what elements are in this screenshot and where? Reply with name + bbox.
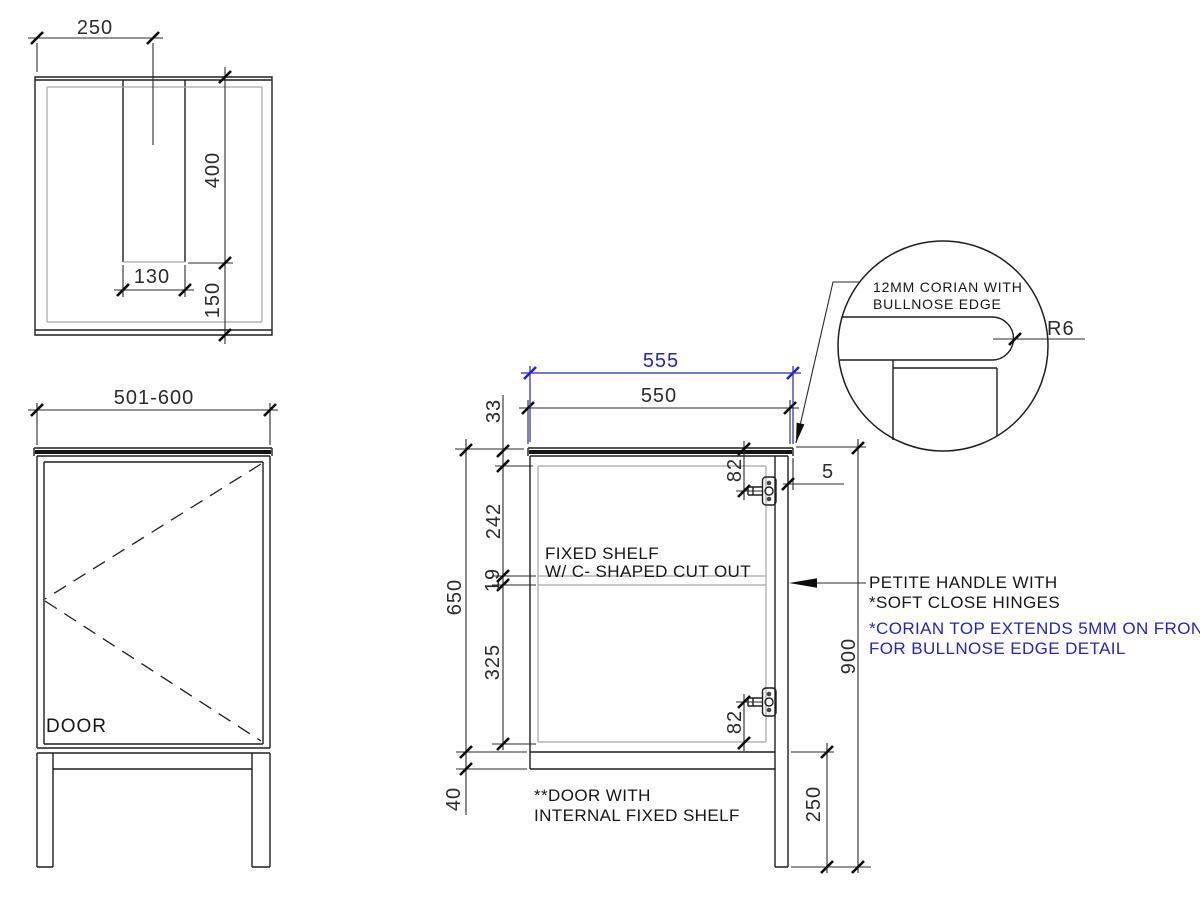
door-label: DOOR xyxy=(46,716,107,737)
drawing-sheet: 250 400 130 150 501-600 DOOR xyxy=(0,0,1200,900)
dim-242: 242 xyxy=(483,503,505,539)
detail-note-line1: 12MM CORIAN WITH xyxy=(873,279,1023,295)
front-view-outline xyxy=(34,448,272,867)
detail-section-lines xyxy=(840,317,1014,440)
side-view-inner-lines xyxy=(538,466,766,742)
door-swing-lines xyxy=(45,464,261,741)
detail-callout-leader xyxy=(796,282,860,443)
note-corian-line2: FOR BULLNOSE EDGE DETAIL xyxy=(869,639,1126,658)
note-door-line2: INTERNAL FIXED SHELF xyxy=(534,806,740,825)
dim-5: 5 xyxy=(822,461,834,483)
note-corian-line1: *CORIAN TOP EXTENDS 5MM ON FRONT xyxy=(869,619,1200,638)
detail-circle xyxy=(838,241,1048,451)
detail-callout-arrowhead xyxy=(796,423,804,443)
dim-250: 250 xyxy=(77,17,113,39)
note-fixed-shelf-line1: FIXED SHELF xyxy=(545,544,659,563)
hinge-screw xyxy=(767,708,772,713)
dim-650: 650 xyxy=(444,579,466,615)
dim-r6: R6 xyxy=(1047,318,1075,340)
note-door-line1: **DOOR WITH xyxy=(534,786,651,805)
dim-40: 40 xyxy=(443,787,465,811)
hinge-screw xyxy=(767,497,772,502)
dim-250-leg: 250 xyxy=(803,786,825,822)
note-handle-line1: PETITE HANDLE WITH xyxy=(869,573,1058,592)
dim-130: 130 xyxy=(134,266,170,288)
detail-view: 12MM CORIAN WITH BULLNOSE EDGE R6 xyxy=(796,241,1085,451)
hinge-screw xyxy=(767,481,772,486)
cabinet-drawing: 250 400 130 150 501-600 DOOR xyxy=(0,0,1200,900)
note-fixed-shelf-line2: W/ C- SHAPED CUT OUT xyxy=(545,562,751,581)
dim-550: 550 xyxy=(641,385,677,407)
note-handle-line2: *SOFT CLOSE HINGES xyxy=(869,593,1060,612)
detail-note-line2: BULLNOSE EDGE xyxy=(873,296,1002,312)
dim-19: 19 xyxy=(482,568,504,592)
top-view-dim-ticks xyxy=(31,32,231,341)
dim-150: 150 xyxy=(202,282,224,318)
hinge-screw xyxy=(767,692,772,697)
dim-82-bottom: 82 xyxy=(724,710,746,734)
dim-325: 325 xyxy=(482,644,504,680)
dim-400: 400 xyxy=(202,152,224,188)
dim-33: 33 xyxy=(483,399,505,423)
top-view: 250 400 130 150 xyxy=(28,17,272,344)
dim-82-top: 82 xyxy=(724,458,746,482)
dim-900: 900 xyxy=(838,638,860,674)
side-view: 555 550 33 242 19 325 650 82 82 5 40 250… xyxy=(443,350,1200,873)
dim-555: 555 xyxy=(643,350,679,372)
handle-leader-arrowhead xyxy=(789,578,817,588)
front-view: 501-600 DOOR xyxy=(28,387,278,867)
front-view-dim-lines xyxy=(28,403,278,445)
dim-width-range: 501-600 xyxy=(114,387,194,409)
